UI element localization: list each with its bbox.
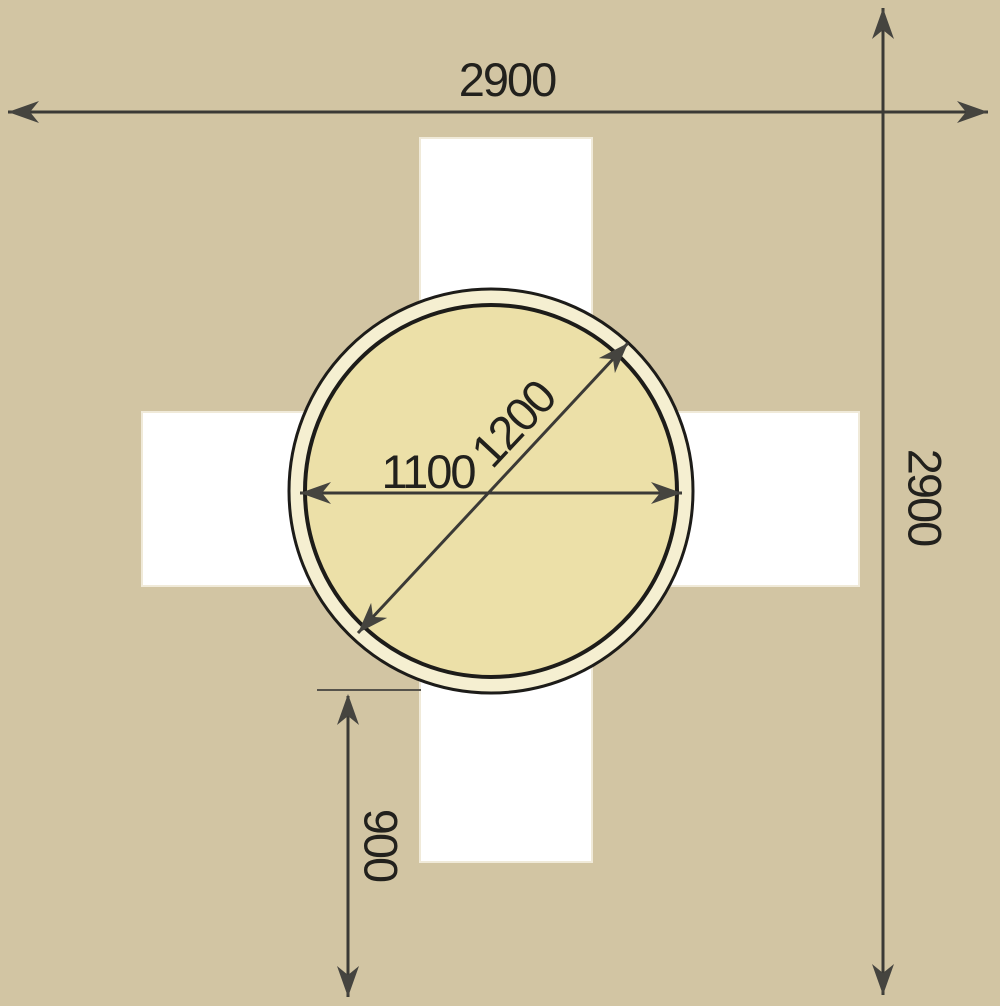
dim-inner-diameter-label: 1100 [381, 445, 475, 498]
dim-offset-label: 900 [355, 809, 408, 882]
dim-top-label: 2900 [459, 53, 556, 106]
plan-diagram: 2900 2900 1100 1200 900 [0, 0, 1000, 1001]
dim-right-label: 2900 [899, 449, 952, 546]
